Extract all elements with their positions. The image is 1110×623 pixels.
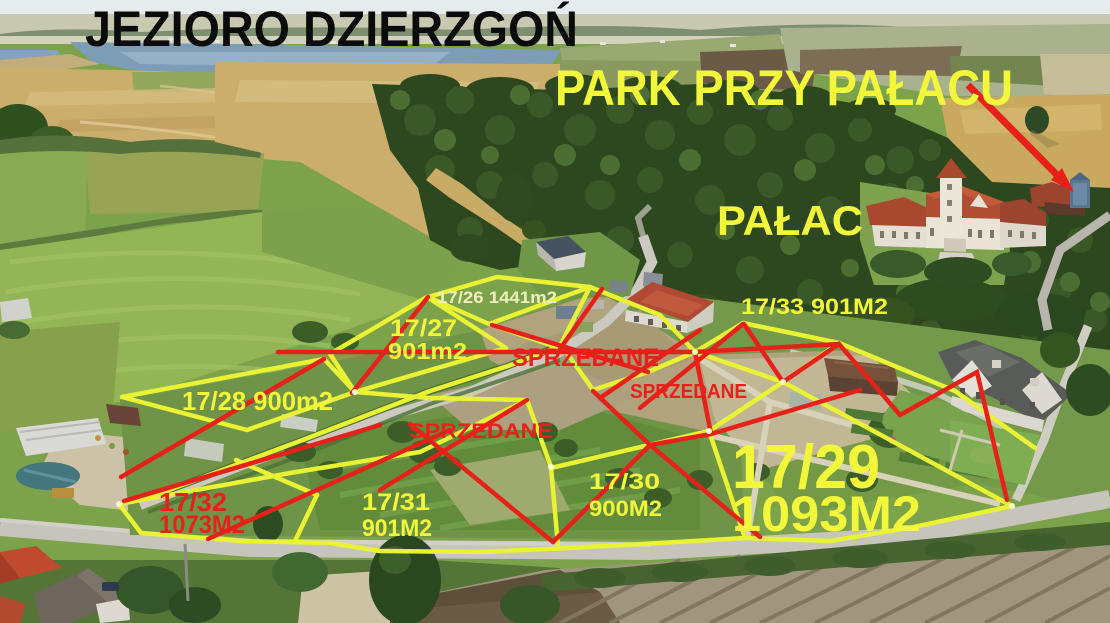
- svg-text:PARK PRZY PAŁACU: PARK PRZY PAŁACU: [555, 60, 1013, 116]
- svg-text:SPRZEDANE: SPRZEDANE: [630, 381, 747, 403]
- svg-text:17/26 1441m2: 17/26 1441m2: [437, 288, 557, 307]
- svg-text:SPRZEDANE: SPRZEDANE: [409, 420, 553, 443]
- svg-text:JEZIORO DZIERZGOŃ: JEZIORO DZIERZGOŃ: [85, 1, 578, 57]
- svg-text:PAŁAC: PAŁAC: [717, 197, 863, 244]
- svg-text:1093M2: 1093M2: [732, 486, 921, 542]
- svg-text:17/28 900m2: 17/28 900m2: [182, 386, 333, 416]
- svg-text:SPRZEDANE: SPRZEDANE: [512, 344, 659, 372]
- svg-text:17/30: 17/30: [589, 469, 660, 494]
- svg-text:1073M2: 1073M2: [159, 511, 245, 539]
- svg-text:900M2: 900M2: [589, 496, 662, 521]
- svg-text:17/31: 17/31: [362, 489, 430, 516]
- svg-text:901M2: 901M2: [362, 515, 432, 542]
- svg-text:901m2: 901m2: [388, 338, 467, 364]
- svg-text:17/33 901M2: 17/33 901M2: [741, 294, 888, 319]
